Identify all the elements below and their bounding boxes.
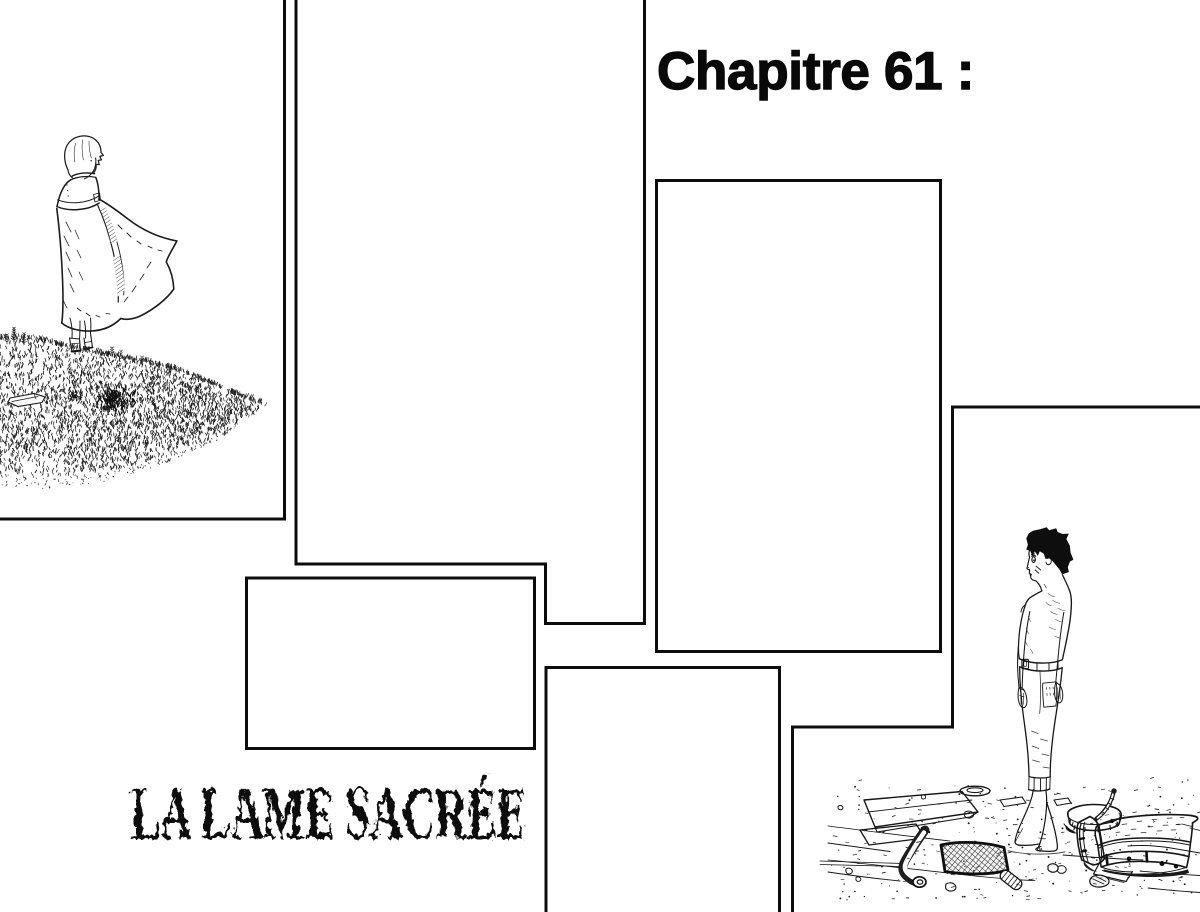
svg-text:Chapitre 61 :: Chapitre 61 : bbox=[657, 42, 974, 101]
svg-text:LA LAME SACRÉE: LA LAME SACRÉE bbox=[128, 771, 524, 853]
